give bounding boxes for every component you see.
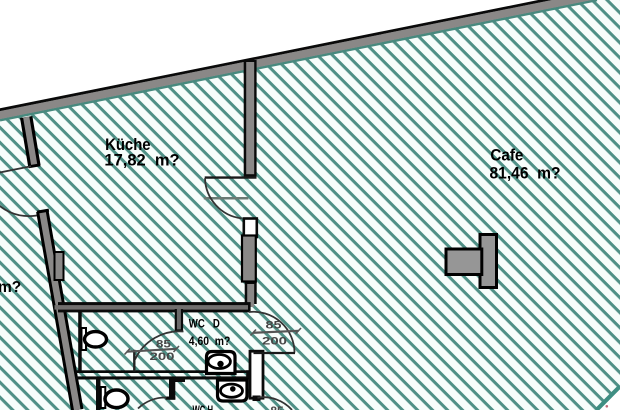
svg-text:85: 85 <box>266 320 282 332</box>
svg-text:4,60 m?: 4,60 m? <box>189 336 231 348</box>
svg-text:200: 200 <box>150 351 175 363</box>
svg-text:85: 85 <box>270 404 284 410</box>
svg-text:85: 85 <box>156 339 171 351</box>
svg-text:81,46 m?: 81,46 m? <box>490 164 561 182</box>
svg-text:200: 200 <box>262 335 287 347</box>
svg-text:WC H: WC H <box>193 405 214 410</box>
svg-text:Cafe: Cafe <box>490 147 523 165</box>
svg-text:WC D: WC D <box>189 319 220 331</box>
svg-text:17,82 m?: 17,82 m? <box>104 152 179 170</box>
svg-text:m?: m? <box>0 279 21 296</box>
